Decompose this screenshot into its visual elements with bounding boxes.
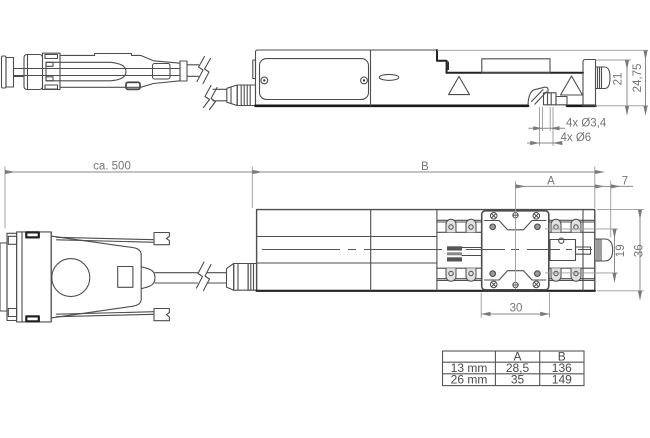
svg-text:ca. 500: ca. 500 [93,161,131,173]
svg-text:4x Ø6: 4x Ø6 [561,132,592,144]
svg-text:21: 21 [613,73,625,86]
svg-text:24,75: 24,75 [632,64,644,93]
svg-text:B: B [421,161,429,173]
svg-text:26 mm: 26 mm [451,372,488,386]
svg-text:30: 30 [510,303,523,315]
svg-text:149: 149 [552,372,572,386]
svg-text:A: A [547,176,555,188]
svg-text:4x Ø3,4: 4x Ø3,4 [566,118,607,130]
svg-text:7: 7 [622,176,628,188]
svg-text:19: 19 [615,244,627,257]
svg-text:35: 35 [511,372,525,386]
svg-text:36: 36 [634,244,646,257]
